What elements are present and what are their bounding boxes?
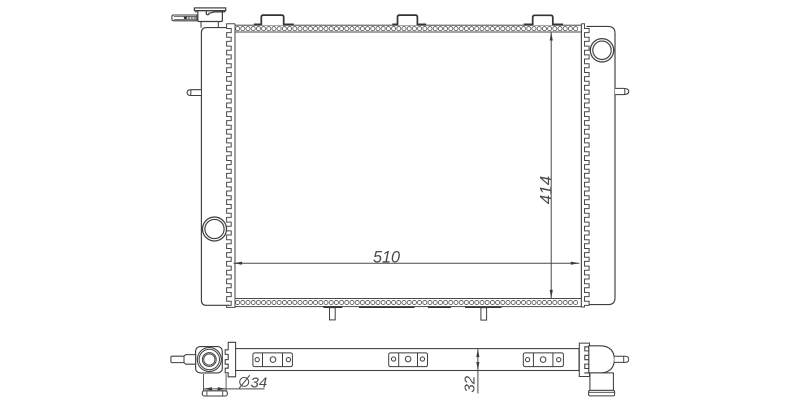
svg-text:34: 34 bbox=[251, 374, 268, 391]
svg-text:414: 414 bbox=[537, 176, 556, 204]
svg-text:32: 32 bbox=[462, 375, 479, 392]
svg-text:510: 510 bbox=[373, 249, 400, 267]
